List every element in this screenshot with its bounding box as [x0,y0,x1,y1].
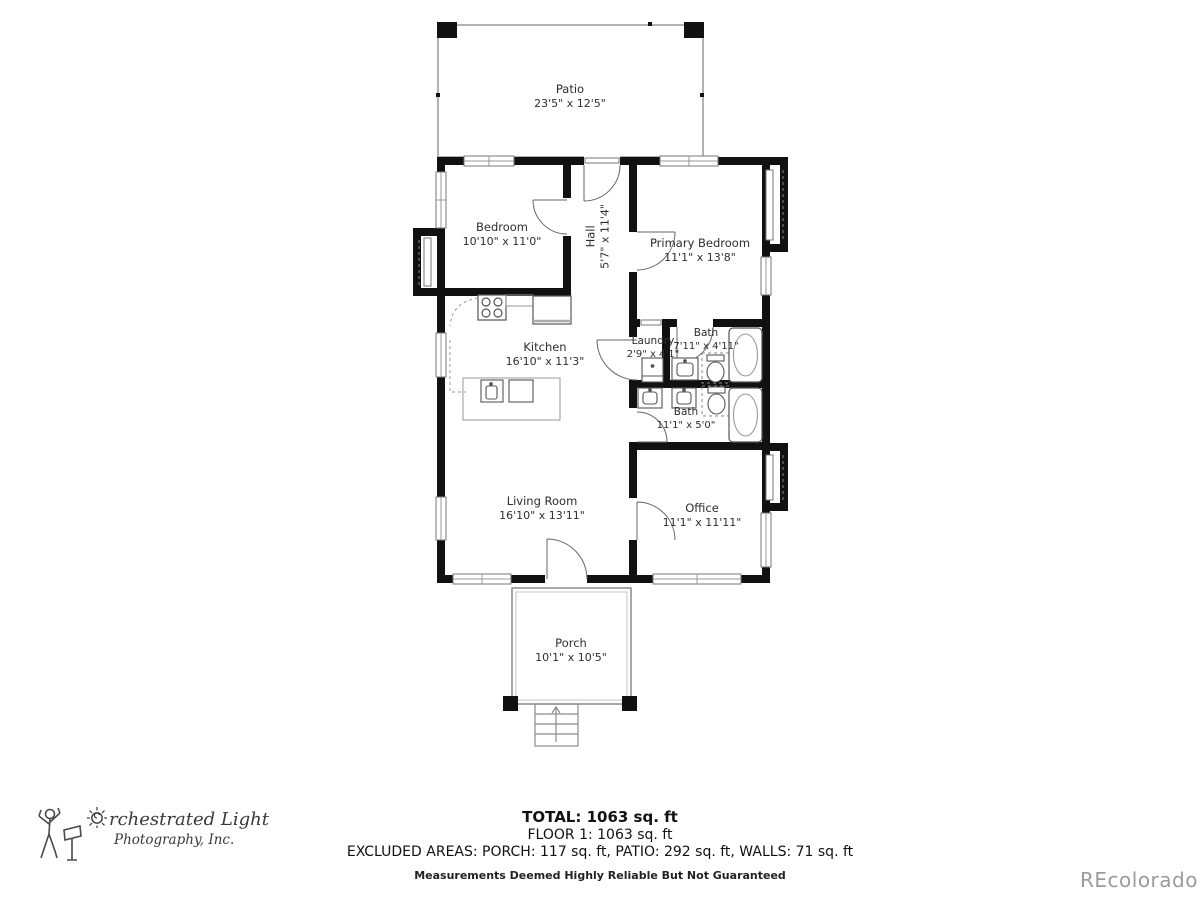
bathtub-icon [729,328,762,382]
photographer-logo: rchestrated Light Photography, Inc. [34,788,254,880]
toilet-icon [702,353,730,383]
sliding-door-panels [585,158,661,325]
conductor-figure-icon [34,796,86,876]
stove-icon [478,295,506,320]
logo-line2: Photography, Inc. [114,832,269,848]
closet-doors [424,170,773,500]
sun-icon [86,806,108,828]
kitchen-sink-icon [481,380,533,402]
toilet-icon [702,386,731,416]
patio-posts [436,22,704,97]
floor-plan-page: Patio 23'5" x 12'5" Bedroom 10'10" x 11'… [0,0,1200,900]
stairs [535,704,578,746]
recolorado-watermark: REcolorado [1080,868,1198,892]
floor-plan-drawing [0,0,1200,900]
logo-line1: rchestrated Light [86,806,269,830]
bath2-fixtures [638,386,762,442]
porch-outline [512,588,631,704]
washer-icon [642,358,663,382]
bath1-fixtures [672,328,762,383]
logo-line1-text: rchestrated Light [109,809,269,830]
patio-outline [438,25,703,157]
bathtub-icon [729,388,762,442]
